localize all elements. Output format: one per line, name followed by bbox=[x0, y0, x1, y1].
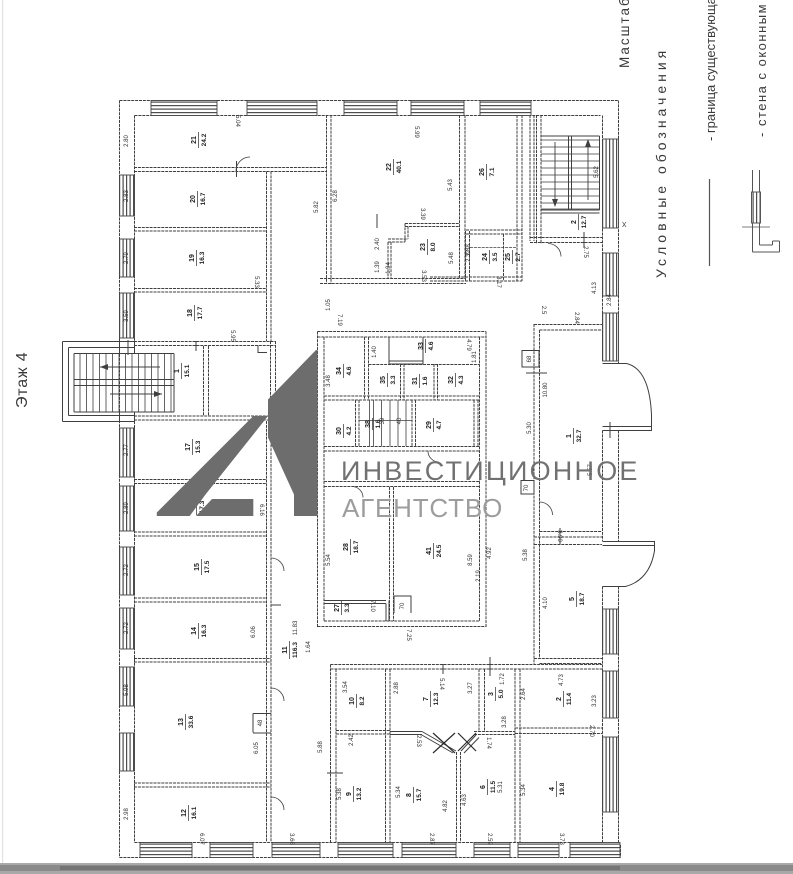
svg-text:16.3: 16.3 bbox=[199, 251, 206, 264]
svg-text:3.5: 3.5 bbox=[492, 252, 499, 261]
svg-text:5.0: 5.0 bbox=[498, 689, 505, 698]
svg-text:18: 18 bbox=[187, 309, 194, 317]
svg-text:26: 26 bbox=[479, 168, 486, 176]
svg-text:2.89: 2.89 bbox=[124, 502, 130, 514]
svg-text:32: 32 bbox=[448, 376, 455, 384]
svg-text:16.7: 16.7 bbox=[200, 192, 207, 205]
svg-text:11.83: 11.83 bbox=[293, 620, 299, 635]
svg-text:15.7: 15.7 bbox=[416, 788, 423, 801]
svg-text:20: 20 bbox=[190, 195, 197, 203]
svg-text:5.54: 5.54 bbox=[326, 554, 332, 566]
svg-text:4.82: 4.82 bbox=[443, 800, 449, 812]
svg-text:5.30: 5.30 bbox=[527, 422, 533, 434]
svg-text:2.40: 2.40 bbox=[375, 238, 381, 250]
svg-text:3.66: 3.66 bbox=[288, 833, 294, 845]
svg-text:2.88: 2.88 bbox=[394, 682, 400, 694]
svg-text:32.7: 32.7 bbox=[576, 429, 583, 442]
svg-text:13.2: 13.2 bbox=[356, 787, 363, 800]
svg-text:15.1: 15.1 bbox=[184, 364, 191, 377]
svg-text:4.92: 4.92 bbox=[487, 547, 493, 559]
svg-text:2.77: 2.77 bbox=[124, 444, 130, 456]
svg-text:17: 17 bbox=[185, 443, 192, 451]
svg-text:2.53: 2.53 bbox=[415, 735, 421, 747]
svg-text:12: 12 bbox=[181, 809, 188, 817]
svg-text:24.5: 24.5 bbox=[436, 544, 443, 557]
svg-text:4.2: 4.2 bbox=[346, 426, 353, 435]
svg-text:10: 10 bbox=[349, 697, 356, 705]
svg-text:4.63: 4.63 bbox=[462, 794, 468, 806]
svg-text:22: 22 bbox=[386, 163, 393, 171]
svg-text:12.3: 12.3 bbox=[433, 692, 440, 705]
svg-text:11.5: 11.5 bbox=[490, 780, 497, 793]
svg-text:1: 1 bbox=[566, 434, 573, 438]
svg-text:1.72: 1.72 bbox=[500, 673, 506, 685]
svg-text:2.72: 2.72 bbox=[124, 564, 130, 576]
svg-text:2.64: 2.64 bbox=[521, 688, 527, 700]
svg-text:23: 23 bbox=[420, 243, 427, 251]
svg-text:4.10: 4.10 bbox=[543, 597, 549, 609]
svg-text:48: 48 bbox=[258, 719, 264, 726]
svg-text:15.3: 15.3 bbox=[195, 440, 202, 453]
svg-text:10.80: 10.80 bbox=[543, 382, 549, 398]
svg-text:Масштаб 1:: Масштаб 1: bbox=[617, 0, 632, 68]
svg-text:3.17: 3.17 bbox=[495, 276, 501, 288]
svg-text:68: 68 bbox=[527, 355, 533, 362]
svg-text:4.79: 4.79 bbox=[465, 339, 471, 351]
svg-text:АГЕНТСТВО: АГЕНТСТВО bbox=[342, 493, 503, 523]
svg-text:2: 2 bbox=[571, 220, 578, 224]
svg-text:3.23: 3.23 bbox=[592, 695, 598, 707]
svg-text:13: 13 bbox=[178, 718, 185, 726]
svg-text:5.88: 5.88 bbox=[318, 741, 324, 753]
svg-text:5: 5 bbox=[569, 597, 576, 601]
svg-text:4.3: 4.3 bbox=[458, 375, 465, 384]
svg-text:40.1: 40.1 bbox=[396, 160, 403, 173]
svg-text:5.38: 5.38 bbox=[337, 788, 343, 800]
svg-text:19.8: 19.8 bbox=[559, 782, 566, 795]
svg-text:3.73: 3.73 bbox=[558, 833, 564, 845]
svg-text:4.13: 4.13 bbox=[592, 282, 598, 294]
svg-text:5.14: 5.14 bbox=[438, 678, 444, 690]
svg-text:30: 30 bbox=[336, 427, 343, 435]
svg-text:1: 1 bbox=[174, 369, 181, 373]
svg-text:2.5: 2.5 bbox=[540, 306, 546, 315]
svg-text:2.72: 2.72 bbox=[124, 622, 130, 634]
svg-text:1.39: 1.39 bbox=[375, 261, 381, 273]
svg-text:24: 24 bbox=[482, 253, 489, 261]
svg-text:28: 28 bbox=[343, 543, 350, 551]
svg-text:11.4: 11.4 bbox=[566, 692, 573, 705]
svg-text:5.82: 5.82 bbox=[314, 201, 320, 213]
svg-text:Этаж 4: Этаж 4 bbox=[14, 352, 31, 408]
svg-text:1.40: 1.40 bbox=[372, 346, 378, 358]
svg-text:6.28: 6.28 bbox=[333, 190, 339, 202]
svg-text:3.53: 3.53 bbox=[420, 270, 426, 282]
svg-text:4.6: 4.6 bbox=[428, 341, 435, 350]
svg-text:1.05: 1.05 bbox=[326, 299, 332, 311]
svg-text:19: 19 bbox=[189, 254, 196, 262]
svg-text:16.3: 16.3 bbox=[201, 624, 208, 637]
svg-text:4.7: 4.7 bbox=[436, 420, 443, 429]
svg-text:3.39: 3.39 bbox=[419, 208, 425, 220]
svg-text:1.74: 1.74 bbox=[485, 737, 491, 749]
svg-text:2.84: 2.84 bbox=[573, 312, 579, 324]
svg-text:1.94: 1.94 bbox=[386, 262, 392, 274]
svg-text:ИНВЕСТИЦИОННОЕ: ИНВЕСТИЦИОННОЕ bbox=[341, 456, 640, 486]
svg-text:18.7: 18.7 bbox=[353, 540, 360, 553]
svg-text:6.06: 6.06 bbox=[251, 626, 257, 638]
svg-text:1.81: 1.81 bbox=[472, 351, 478, 363]
svg-text:2.70: 2.70 bbox=[588, 725, 594, 737]
svg-text:3.59: 3.59 bbox=[124, 310, 130, 322]
svg-text:4: 4 bbox=[549, 787, 556, 791]
svg-text:33: 33 bbox=[418, 342, 425, 350]
svg-text:5.34: 5.34 bbox=[396, 786, 402, 798]
svg-text:2.42: 2.42 bbox=[349, 734, 355, 746]
svg-text:14: 14 bbox=[191, 627, 198, 635]
svg-text:3.28: 3.28 bbox=[502, 716, 508, 728]
svg-text:2.98: 2.98 bbox=[124, 808, 130, 820]
svg-text:5.62: 5.62 bbox=[594, 166, 600, 178]
svg-text:6.07: 6.07 bbox=[198, 833, 204, 845]
svg-text:116.3: 116.3 bbox=[292, 642, 299, 658]
svg-text:7.1: 7.1 bbox=[489, 167, 496, 176]
svg-text:5.98: 5.98 bbox=[124, 684, 130, 696]
svg-text:29: 29 bbox=[426, 421, 433, 429]
svg-text:33.6: 33.6 bbox=[188, 715, 195, 728]
svg-text:8: 8 bbox=[406, 793, 413, 797]
svg-text:41: 41 bbox=[426, 547, 433, 555]
svg-text:9: 9 bbox=[346, 792, 353, 796]
svg-text:8.2: 8.2 bbox=[359, 696, 366, 705]
svg-text:2.75: 2.75 bbox=[582, 246, 588, 258]
svg-text:70: 70 bbox=[400, 602, 406, 609]
svg-text:3.48: 3.48 bbox=[326, 375, 332, 387]
svg-text:5.43: 5.43 bbox=[448, 179, 454, 191]
svg-text:2.80: 2.80 bbox=[124, 135, 130, 147]
svg-text:17.7: 17.7 bbox=[197, 306, 204, 319]
svg-text:3.3: 3.3 bbox=[344, 603, 351, 612]
svg-text:11: 11 bbox=[282, 646, 289, 654]
svg-text:21: 21 bbox=[191, 136, 198, 144]
svg-text:2.84: 2.84 bbox=[607, 294, 613, 306]
svg-text:31: 31 bbox=[412, 377, 419, 385]
svg-text:3.3: 3.3 bbox=[390, 375, 397, 384]
svg-text:5.34: 5.34 bbox=[521, 784, 527, 796]
svg-text:5.95: 5.95 bbox=[229, 330, 235, 342]
svg-text:6.05: 6.05 bbox=[254, 742, 260, 754]
svg-text:- граница существующая: - граница существующая bbox=[703, 0, 718, 141]
svg-text:18.7: 18.7 bbox=[579, 592, 586, 605]
svg-text:40: 40 bbox=[397, 417, 403, 424]
svg-text:7: 7 bbox=[423, 697, 430, 701]
svg-text:2.83: 2.83 bbox=[124, 190, 130, 202]
svg-text:3.54: 3.54 bbox=[343, 681, 349, 693]
svg-text:25: 25 bbox=[505, 253, 512, 261]
svg-text:8.0: 8.0 bbox=[430, 242, 437, 251]
svg-text:5.48: 5.48 bbox=[449, 252, 455, 264]
svg-text:1.6: 1.6 bbox=[375, 419, 382, 428]
svg-text:8.59: 8.59 bbox=[468, 554, 474, 566]
svg-text:2.87: 2.87 bbox=[428, 833, 434, 845]
svg-text:x: x bbox=[622, 219, 627, 229]
svg-text:34: 34 bbox=[336, 367, 343, 375]
svg-text:24.2: 24.2 bbox=[201, 133, 208, 146]
svg-text:17.5: 17.5 bbox=[204, 560, 211, 573]
svg-text:7.10: 7.10 bbox=[369, 600, 375, 612]
svg-text:1.6: 1.6 bbox=[422, 376, 429, 385]
svg-text:2.7: 2.7 bbox=[515, 252, 522, 261]
svg-text:16.1: 16.1 bbox=[191, 806, 198, 819]
svg-text:12.7: 12.7 bbox=[581, 215, 588, 228]
svg-text:2.79: 2.79 bbox=[124, 252, 130, 264]
svg-text:4.73: 4.73 bbox=[559, 674, 565, 686]
svg-text:3.90: 3.90 bbox=[556, 530, 562, 542]
svg-text:3: 3 bbox=[488, 692, 495, 696]
svg-text:5.04: 5.04 bbox=[234, 115, 240, 127]
svg-text:2.19: 2.19 bbox=[476, 570, 482, 582]
svg-text:- стена с оконным: - стена с оконным bbox=[754, 3, 769, 137]
svg-text:5.38: 5.38 bbox=[523, 549, 529, 561]
svg-text:1.64: 1.64 bbox=[306, 641, 312, 653]
svg-text:6: 6 bbox=[480, 785, 487, 789]
svg-text:5.31: 5.31 bbox=[498, 781, 504, 793]
svg-text:2.59: 2.59 bbox=[486, 833, 492, 845]
svg-text:Условные обозначения: Условные обозначения bbox=[653, 47, 669, 278]
svg-text:15: 15 bbox=[194, 563, 201, 571]
svg-text:6.16: 6.16 bbox=[258, 504, 264, 516]
svg-text:5.33: 5.33 bbox=[253, 276, 259, 288]
svg-text:3.27: 3.27 bbox=[468, 682, 474, 694]
svg-text:7.25: 7.25 bbox=[405, 629, 411, 641]
svg-text:4.6: 4.6 bbox=[346, 366, 353, 375]
svg-text:5.99: 5.99 bbox=[413, 126, 419, 138]
svg-text:7.19: 7.19 bbox=[336, 314, 342, 326]
svg-text:35: 35 bbox=[380, 376, 387, 384]
svg-text:38: 38 bbox=[365, 420, 372, 428]
svg-text:2.88: 2.88 bbox=[466, 244, 472, 256]
svg-text:2: 2 bbox=[556, 697, 563, 701]
svg-text:27: 27 bbox=[334, 604, 341, 612]
